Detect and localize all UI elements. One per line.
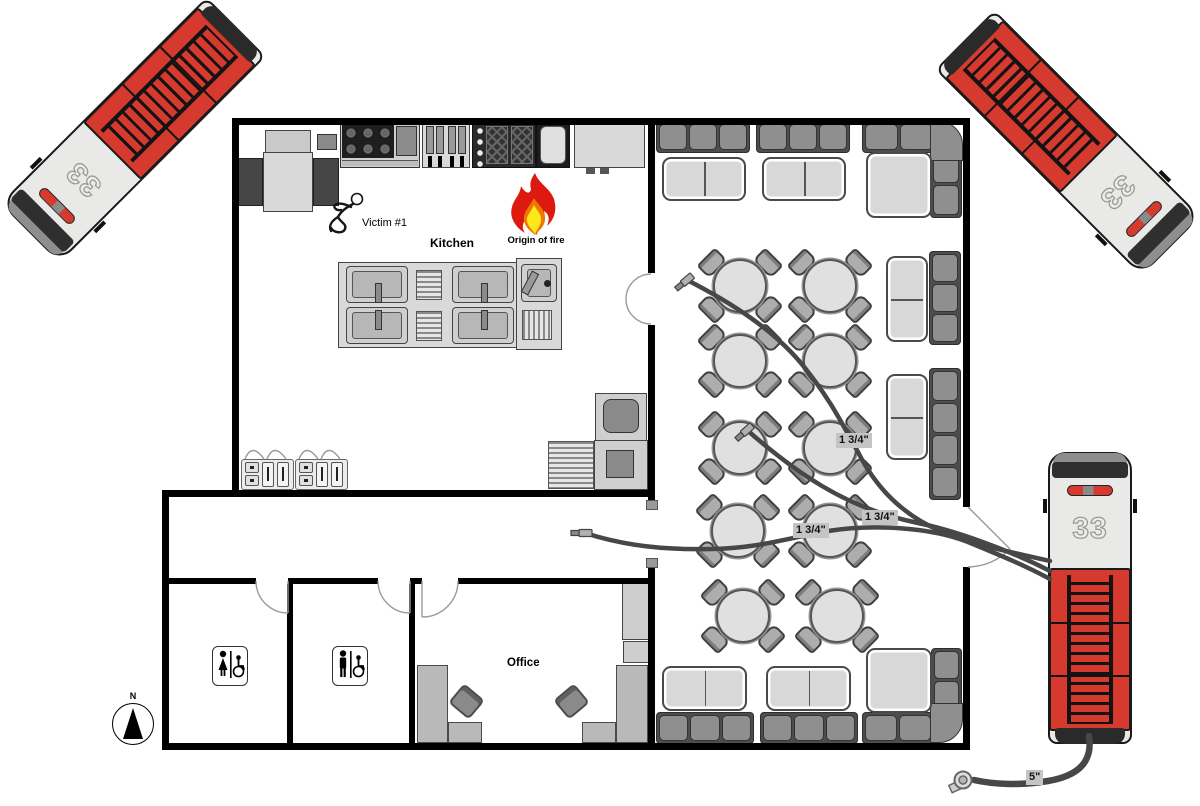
bench-cushion — [932, 403, 958, 433]
wall-right-lower — [963, 567, 970, 750]
dining-table — [810, 589, 864, 643]
office-desk — [448, 722, 482, 743]
truck-compartment-line — [1051, 675, 1129, 677]
office-cabinet-low — [623, 641, 649, 663]
booth-table — [866, 152, 932, 218]
dining-table — [713, 334, 767, 388]
bench-cushion — [932, 254, 958, 282]
bench-cushion — [933, 185, 959, 215]
sink — [346, 266, 408, 303]
rack-door-arc — [321, 451, 340, 460]
dishwasher-rack — [548, 441, 594, 489]
bench-cushion — [932, 371, 958, 401]
drainboard — [416, 270, 442, 300]
wall-lower-left — [162, 490, 169, 750]
range-burner-area — [342, 124, 394, 158]
kitchen-double-door — [626, 274, 651, 299]
office-chair — [553, 683, 590, 720]
wall-restroom-top-2 — [288, 578, 378, 584]
wall-hall-top — [162, 490, 655, 497]
hand-sink — [521, 264, 557, 302]
bench-cushion — [899, 715, 931, 741]
restroom-sign-men — [332, 646, 368, 686]
booth-corner — [930, 121, 963, 161]
kitchen-double-door — [626, 299, 651, 324]
origin-of-fire-label: Origin of fire — [502, 235, 570, 246]
bench-cushion — [763, 715, 792, 741]
counter-foot — [586, 168, 595, 174]
dining-exit-door — [968, 549, 1010, 567]
rack-dot — [304, 479, 308, 482]
truck-compartment-line — [1051, 622, 1129, 624]
hose-nozzle — [674, 273, 695, 292]
bench-cushion — [934, 651, 959, 679]
fryer-handle — [428, 156, 432, 167]
bench-cushion — [865, 715, 897, 741]
sink — [452, 307, 514, 344]
table-divider — [804, 162, 806, 196]
fryer-basket — [426, 126, 434, 154]
range-griddle — [396, 126, 417, 156]
sink — [452, 266, 514, 303]
bench-cushion — [932, 467, 958, 497]
office-desk — [616, 665, 648, 743]
rack-slit — [267, 467, 269, 481]
office-cabinet — [622, 583, 649, 640]
small-appliance — [317, 134, 337, 150]
bench-cushion — [659, 715, 688, 741]
booth-corner — [930, 703, 963, 743]
booth-bench — [862, 121, 936, 153]
truck-body — [1049, 568, 1131, 731]
hydrant-icon — [949, 772, 972, 793]
restroom-sign-women — [212, 646, 248, 686]
truck-rear-bumper — [1055, 728, 1125, 744]
dining-table — [716, 589, 770, 643]
booth-bench — [929, 251, 961, 345]
fryer-handle — [438, 156, 442, 167]
dish-machine — [265, 130, 311, 154]
booth-bench — [756, 121, 850, 153]
range-knob-strip — [342, 160, 418, 166]
booth-table — [866, 648, 932, 713]
table-divider — [891, 299, 923, 301]
rack-door-arc — [299, 451, 318, 460]
truck-ladder — [100, 25, 238, 163]
dining-table — [713, 259, 767, 313]
bench-cushion — [789, 124, 817, 150]
booth-table — [886, 374, 928, 460]
bench-cushion — [826, 715, 855, 741]
wall-restroom-top-1 — [166, 578, 256, 584]
hose-size-label: 1 3/4" — [836, 433, 872, 448]
truck-mirror — [1043, 499, 1047, 513]
rack-slit — [321, 467, 323, 481]
wall-kitchen-left — [232, 118, 239, 497]
truck-mirror — [1133, 499, 1137, 513]
fire-origin-icon — [503, 172, 567, 236]
bench-cushion — [932, 284, 958, 312]
wall-divider-upper — [648, 118, 655, 273]
table-divider — [809, 671, 811, 706]
north-compass-icon — [112, 703, 154, 745]
mens-restroom-door — [378, 581, 410, 613]
dish-bin-left — [237, 158, 263, 206]
hose-size-label: 1 3/4" — [862, 510, 898, 525]
bench-cushion — [932, 435, 958, 465]
bench-cushion — [900, 124, 933, 150]
rack-slit — [336, 467, 338, 481]
hose-nozzle — [571, 530, 592, 537]
womens-restroom-door — [256, 581, 288, 613]
truck-ladder — [963, 38, 1101, 176]
booth-table — [662, 157, 746, 201]
wall-right-upper — [963, 118, 970, 507]
bench-cushion — [659, 124, 687, 150]
wall-restroom-divider-1 — [287, 584, 293, 743]
wall-office-top — [458, 578, 655, 584]
north-label: N — [112, 691, 154, 701]
rack-slit — [282, 467, 284, 481]
wall-top — [232, 118, 970, 125]
dining-table — [713, 421, 767, 475]
counter — [574, 120, 645, 168]
office-chair — [448, 683, 485, 720]
fryer-basket — [448, 126, 456, 154]
fire-incident-diagram: Victim #1 Kitchen Origin of fire Office … — [0, 0, 1200, 806]
supply-hose-size-label: 5" — [1026, 770, 1043, 785]
office-door — [422, 581, 458, 617]
wall-divider-mid — [648, 325, 655, 505]
prep-table — [263, 152, 313, 212]
bench-cushion — [690, 715, 719, 741]
truck-lightbar — [1067, 485, 1113, 496]
dining-table — [803, 334, 857, 388]
wall-end-cap — [646, 558, 658, 568]
wall-restroom-divider-2 — [409, 584, 415, 743]
rack-dot — [250, 479, 254, 482]
rack-dot — [304, 466, 308, 469]
bench-cushion — [819, 124, 847, 150]
booth-table — [766, 666, 851, 711]
fire-engine-staged-top-right: 33 — [935, 10, 1200, 276]
dishwasher-door — [606, 450, 634, 478]
bench-cushion — [722, 715, 751, 741]
drainboard — [522, 310, 552, 340]
booth-table — [762, 157, 846, 201]
rack-dot — [250, 466, 254, 469]
bench-cushion — [689, 124, 717, 150]
hose-size-label: 1 3/4" — [793, 523, 829, 538]
charbroiler-grate — [511, 126, 533, 164]
fryer-basket — [458, 126, 466, 154]
fire-engine-staged-top-left: 33 — [0, 0, 266, 263]
fryer-handle — [460, 156, 464, 167]
booth-bench — [656, 121, 750, 153]
table-divider — [705, 671, 707, 706]
wall-bottom-dining — [648, 743, 970, 750]
truck-ladder — [1067, 575, 1113, 724]
rack-door-arc — [267, 451, 286, 460]
sink — [346, 307, 408, 344]
bench-cushion — [932, 314, 958, 342]
fryer-basket — [436, 126, 444, 154]
truck-windshield — [1052, 462, 1128, 478]
booth-bench — [760, 712, 858, 744]
dining-table — [711, 504, 765, 558]
women-accessible-icon — [213, 647, 246, 684]
compass-needle — [123, 708, 143, 739]
office-desk — [582, 722, 616, 743]
office-label: Office — [507, 657, 540, 669]
booth-bench — [656, 712, 754, 744]
bench-cushion — [794, 715, 823, 741]
griddle-plate — [540, 126, 566, 164]
booth-bench — [862, 712, 934, 744]
wall-office-right — [648, 563, 655, 750]
booth-table — [886, 256, 928, 342]
wall-bottom-left — [162, 743, 657, 750]
kitchen-label: Kitchen — [430, 236, 474, 250]
truck-unit-number: 33 — [1048, 514, 1132, 544]
men-accessible-icon — [333, 647, 366, 684]
office-desk — [417, 665, 448, 743]
booth-table — [662, 666, 747, 711]
dining-table — [803, 259, 857, 313]
drainboard — [416, 311, 442, 341]
bench-cushion — [719, 124, 747, 150]
victim-label: Victim #1 — [362, 217, 407, 229]
charbroiler-grate — [486, 126, 508, 164]
counter-foot — [600, 168, 609, 174]
table-divider — [891, 417, 923, 419]
fire-engine-attack: 33 — [1048, 452, 1132, 744]
table-divider — [704, 162, 706, 196]
fryer-handle — [450, 156, 454, 167]
wall-end-cap — [646, 500, 658, 510]
bench-cushion — [759, 124, 787, 150]
booth-bench — [929, 368, 961, 500]
rack-door-arc — [245, 451, 264, 460]
oven-window — [603, 399, 639, 433]
bench-cushion — [865, 124, 898, 150]
dining-exit-door-leaf — [968, 507, 1010, 549]
